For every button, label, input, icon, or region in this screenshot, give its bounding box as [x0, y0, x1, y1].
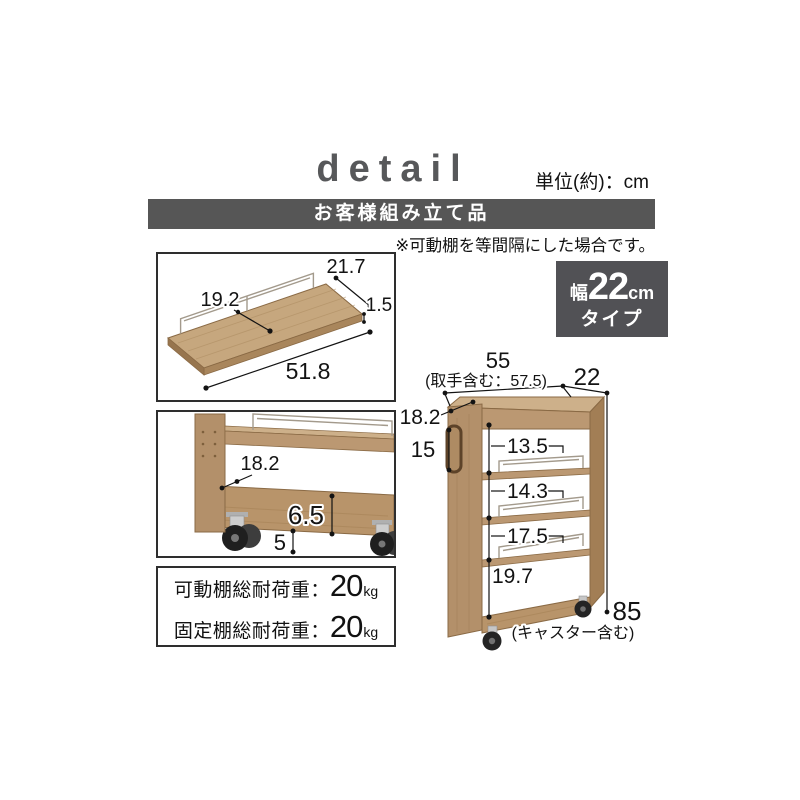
- cart-side-panel: [447, 404, 482, 637]
- load-value: 20: [330, 609, 362, 645]
- shelf-board: [168, 284, 362, 375]
- shelf-spacing-note: ※可動棚を等間隔にした場合です。: [395, 232, 655, 256]
- load-unit: kg: [363, 583, 378, 599]
- dim-clearance: 5: [274, 530, 286, 555]
- dim-top-shelf-depth: 18.2: [400, 406, 441, 429]
- shelf-dimension-box: 21.7 1.5 19.2 51.8: [156, 252, 396, 402]
- shelf-diagram: 21.7 1.5 19.2 51.8: [158, 254, 394, 400]
- dim-width: 55: [486, 348, 510, 373]
- dim-top-width: 21.7: [327, 256, 366, 278]
- page-title: detail: [293, 148, 493, 191]
- load-label: 可動棚総耐荷重：: [174, 575, 330, 602]
- width-badge-prefix: 幅: [570, 284, 588, 303]
- width-type-badge: 幅 22 cm タイプ: [556, 261, 668, 337]
- dim-thickness: 1.5: [366, 295, 392, 316]
- dim-shelf-gap-1: 13.5: [507, 435, 548, 458]
- unit-label: 単位(約)：cm: [535, 167, 649, 194]
- caster-diagram: 18.2 6.5 5: [158, 412, 394, 556]
- side-panel: [195, 414, 225, 532]
- dim-total-height-note: (キャスター含む): [512, 624, 635, 642]
- assembly-banner-text: お客様組み立て品: [313, 203, 489, 224]
- product-detail-page: detail 単位(約)：cm お客様組み立て品 ※可動棚を等間隔にした場合です…: [0, 0, 800, 800]
- load-unit: kg: [363, 624, 378, 640]
- dim-shelf-depth: 18.2: [241, 453, 280, 475]
- width-badge-value: 22: [588, 268, 628, 308]
- load-capacity-box: 可動棚総耐荷重：20kg 固定棚総耐荷重：20kg: [156, 566, 396, 647]
- dim-total-height: 85: [613, 596, 642, 626]
- load-row-fixed: 固定棚総耐荷重：20kg: [158, 609, 394, 645]
- dim-shelf-gap-2: 14.3: [507, 480, 548, 503]
- width-badge-line1: 幅 22 cm: [570, 268, 654, 308]
- load-label: 固定棚総耐荷重：: [174, 616, 330, 643]
- width-badge-unit: cm: [628, 284, 654, 303]
- load-row-movable: 可動棚総耐荷重：20kg: [158, 568, 394, 604]
- caster-dimension-box: 18.2 6.5 5: [156, 410, 396, 558]
- cart-diagram: 55 (取手含む：57.5) 22 18.2 15 13.5 14.3 17.5: [395, 340, 705, 675]
- dim-depth: 22: [574, 364, 601, 391]
- dim-length: 51.8: [286, 358, 331, 384]
- load-value: 20: [330, 568, 362, 604]
- dim-base-height: 6.5: [288, 500, 324, 530]
- width-badge-suffix: タイプ: [580, 310, 643, 330]
- cart-dimensions: 55 (取手含む：57.5) 22 18.2 15 13.5 14.3 17.5: [400, 348, 642, 642]
- dim-handle-height: 15: [411, 437, 435, 462]
- dim-shelf-gap-4: 19.7: [492, 565, 533, 588]
- upper-shelf: [225, 426, 394, 452]
- assembly-banner: お客様組み立て品: [148, 199, 655, 229]
- dim-width-with-handle: (取手含む：57.5): [425, 372, 547, 390]
- dim-shelf-gap-3: 17.5: [507, 525, 548, 548]
- dim-inner-width: 19.2: [201, 289, 240, 311]
